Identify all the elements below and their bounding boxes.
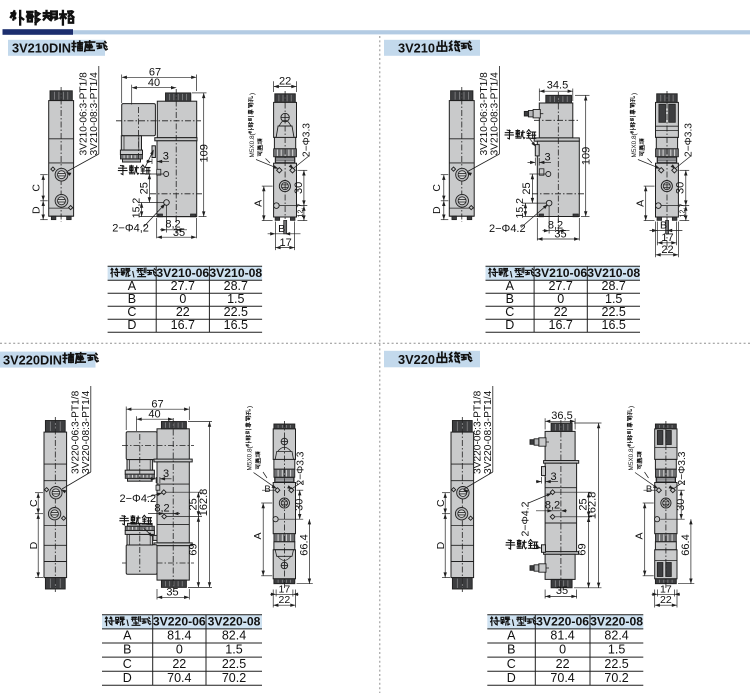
- svg-text:A: A: [252, 532, 264, 539]
- svg-text:C: C: [31, 184, 43, 192]
- svg-text:22: 22: [661, 244, 673, 256]
- svg-text:22.5: 22.5: [604, 657, 628, 671]
- svg-text:30: 30: [675, 499, 687, 511]
- svg-text:A: A: [635, 200, 647, 207]
- svg-text:3V220-06: 3V220-06: [536, 615, 589, 629]
- svg-text:15,2: 15,2: [130, 198, 142, 219]
- svg-text:27.7: 27.7: [549, 279, 573, 293]
- svg-text:36,5: 36,5: [551, 410, 572, 422]
- svg-text:B: B: [506, 292, 514, 306]
- svg-text:22: 22: [172, 657, 186, 671]
- svg-text:1.5: 1.5: [227, 292, 244, 306]
- svg-text:162.8: 162.8: [198, 489, 210, 517]
- svg-text:66.4: 66.4: [298, 534, 310, 555]
- svg-text:22: 22: [279, 75, 291, 87]
- svg-text:81.4: 81.4: [167, 629, 191, 643]
- svg-text:2−Φ4.2: 2−Φ4.2: [120, 493, 157, 505]
- svg-text:22.5: 22.5: [222, 657, 246, 671]
- svg-text:40: 40: [148, 77, 160, 89]
- svg-text:22: 22: [556, 657, 570, 671]
- svg-text:16.7: 16.7: [171, 318, 195, 332]
- svg-text:2−Φ3.3: 2−Φ3.3: [302, 123, 313, 157]
- svg-text:M5X0.8(: M5X0.8(: [249, 132, 256, 157]
- svg-text:109: 109: [580, 147, 592, 165]
- svg-text:28.7: 28.7: [224, 279, 248, 293]
- svg-text:17: 17: [661, 232, 673, 244]
- svg-text:B: B: [128, 292, 136, 306]
- svg-text:): ): [631, 93, 638, 95]
- svg-text:3V220-08: 3V220-08: [208, 615, 261, 629]
- svg-text:A: A: [506, 279, 515, 293]
- svg-text:30: 30: [293, 182, 305, 194]
- svg-text:0: 0: [559, 643, 566, 657]
- svg-text:34.5: 34.5: [547, 80, 568, 92]
- svg-text:3V220-08:3-PT1/4: 3V220-08:3-PT1/4: [483, 390, 494, 474]
- svg-text:C: C: [431, 184, 443, 192]
- svg-text:A: A: [128, 279, 137, 293]
- svg-text:M5X0.8(: M5X0.8(: [628, 445, 635, 470]
- svg-text:D: D: [31, 206, 43, 214]
- svg-text:1.5: 1.5: [608, 643, 625, 657]
- svg-text:B: B: [660, 220, 667, 232]
- svg-text:D: D: [431, 206, 443, 214]
- svg-text:1.5: 1.5: [225, 643, 242, 657]
- svg-text:69: 69: [576, 543, 588, 555]
- svg-text:3: 3: [544, 152, 550, 164]
- svg-text:0: 0: [176, 643, 183, 657]
- svg-text:16.5: 16.5: [602, 318, 626, 332]
- svg-text:70.2: 70.2: [222, 671, 246, 685]
- svg-text:A: A: [634, 532, 646, 539]
- svg-text:8,2: 8,2: [154, 502, 169, 514]
- svg-text:M5X0.8(: M5X0.8(: [631, 132, 638, 157]
- svg-text:8,2: 8,2: [545, 500, 560, 512]
- svg-text:17: 17: [279, 237, 291, 249]
- svg-text:D: D: [28, 541, 40, 549]
- svg-text:35: 35: [554, 228, 566, 240]
- svg-text:3V220-06:3-PT1/8: 3V220-06:3-PT1/8: [70, 390, 81, 474]
- svg-text:M5X0.8(: M5X0.8(: [247, 445, 254, 470]
- svg-text:30: 30: [294, 499, 306, 511]
- svg-text:16.5: 16.5: [224, 318, 248, 332]
- svg-text:40: 40: [148, 409, 160, 421]
- svg-text:A: A: [253, 200, 265, 207]
- svg-text:0: 0: [179, 292, 186, 306]
- svg-text:35: 35: [166, 587, 178, 599]
- svg-text:3V220-06: 3V220-06: [153, 615, 206, 629]
- svg-text:A: A: [507, 629, 516, 643]
- svg-text:66.4: 66.4: [680, 534, 692, 555]
- svg-text:70.4: 70.4: [550, 671, 574, 685]
- svg-text:15,2: 15,2: [514, 198, 526, 219]
- svg-text:C: C: [505, 305, 514, 319]
- svg-text:3V210-06:3-PT1/8: 3V210-06:3-PT1/8: [79, 72, 90, 156]
- svg-text:B: B: [123, 643, 131, 657]
- svg-text:3V210-06:3-PT1/8: 3V210-06:3-PT1/8: [479, 72, 490, 156]
- svg-text:0: 0: [557, 292, 564, 306]
- svg-text:C: C: [123, 657, 132, 671]
- svg-text:2−Φ4,2: 2−Φ4,2: [112, 222, 149, 234]
- svg-text:3V220-08: 3V220-08: [590, 615, 643, 629]
- svg-text:D: D: [123, 671, 132, 685]
- svg-text:3: 3: [163, 468, 169, 480]
- svg-text:22.5: 22.5: [602, 305, 626, 319]
- svg-text:25: 25: [521, 182, 533, 194]
- svg-text:81.4: 81.4: [550, 629, 574, 643]
- svg-text:25: 25: [138, 182, 150, 194]
- svg-text:2−Φ3.3: 2−Φ3.3: [295, 451, 306, 485]
- svg-text:82.4: 82.4: [604, 629, 628, 643]
- svg-text:3V220-08:3-PT1/4: 3V220-08:3-PT1/4: [81, 390, 92, 474]
- svg-text:82.4: 82.4: [222, 629, 246, 643]
- svg-text:3V220-06:3-PT1/8: 3V220-06:3-PT1/8: [472, 390, 483, 474]
- svg-text:D: D: [127, 318, 136, 332]
- svg-text:3: 3: [163, 151, 169, 163]
- svg-text:22: 22: [176, 305, 190, 319]
- svg-text:B: B: [507, 643, 515, 657]
- svg-text:D: D: [507, 671, 516, 685]
- svg-text:B: B: [646, 484, 652, 495]
- svg-text:70.4: 70.4: [167, 671, 191, 685]
- svg-text:30: 30: [675, 182, 687, 194]
- svg-text:69: 69: [187, 543, 199, 555]
- svg-text:12.7: 12.7: [678, 204, 687, 218]
- svg-text:2−Φ4.2: 2−Φ4.2: [489, 223, 526, 235]
- svg-text:28.7: 28.7: [602, 279, 626, 293]
- svg-text:27.7: 27.7: [171, 279, 195, 293]
- svg-text:3V210DIN: 3V210DIN: [12, 41, 71, 56]
- svg-text:C: C: [28, 499, 40, 507]
- svg-text:2−Φ4.2: 2−Φ4.2: [520, 501, 532, 536]
- svg-text:70.2: 70.2: [604, 671, 628, 685]
- svg-text:3V220: 3V220: [398, 352, 435, 367]
- svg-text:C: C: [507, 657, 516, 671]
- svg-text:C: C: [127, 305, 136, 319]
- svg-text:3V210: 3V210: [398, 41, 435, 56]
- svg-text:\: \: [512, 618, 515, 629]
- svg-text:22: 22: [279, 594, 291, 606]
- svg-text:2−Φ3.3: 2−Φ3.3: [677, 451, 688, 485]
- svg-text:16.7: 16.7: [549, 318, 573, 332]
- svg-text:B: B: [278, 223, 285, 235]
- svg-text:162.8: 162.8: [586, 492, 598, 520]
- svg-text:12.7: 12.7: [296, 204, 305, 218]
- svg-text:35: 35: [556, 585, 568, 597]
- svg-text:3: 3: [550, 471, 556, 483]
- svg-text:3V210-08:3-PT1/4: 3V210-08:3-PT1/4: [89, 72, 100, 156]
- svg-text:): ): [249, 93, 256, 95]
- svg-text:): ): [628, 406, 635, 408]
- svg-text:D: D: [435, 541, 447, 549]
- svg-text:D: D: [505, 318, 514, 332]
- svg-text:22.5: 22.5: [224, 305, 248, 319]
- svg-text:22: 22: [660, 594, 672, 606]
- svg-text:A: A: [123, 629, 132, 643]
- svg-text:35: 35: [173, 227, 185, 239]
- svg-text:C: C: [435, 499, 447, 507]
- svg-text:22: 22: [554, 305, 568, 319]
- svg-text:109: 109: [198, 144, 210, 162]
- svg-text:3V220DIN: 3V220DIN: [3, 352, 62, 367]
- svg-text:3V210-08:3-PT1/4: 3V210-08:3-PT1/4: [490, 72, 501, 156]
- svg-text:1.5: 1.5: [605, 292, 622, 306]
- svg-text:): ): [247, 406, 254, 408]
- svg-text:B: B: [264, 484, 270, 495]
- svg-text:2−Φ3.3: 2−Φ3.3: [683, 123, 694, 157]
- svg-text:\: \: [126, 618, 129, 629]
